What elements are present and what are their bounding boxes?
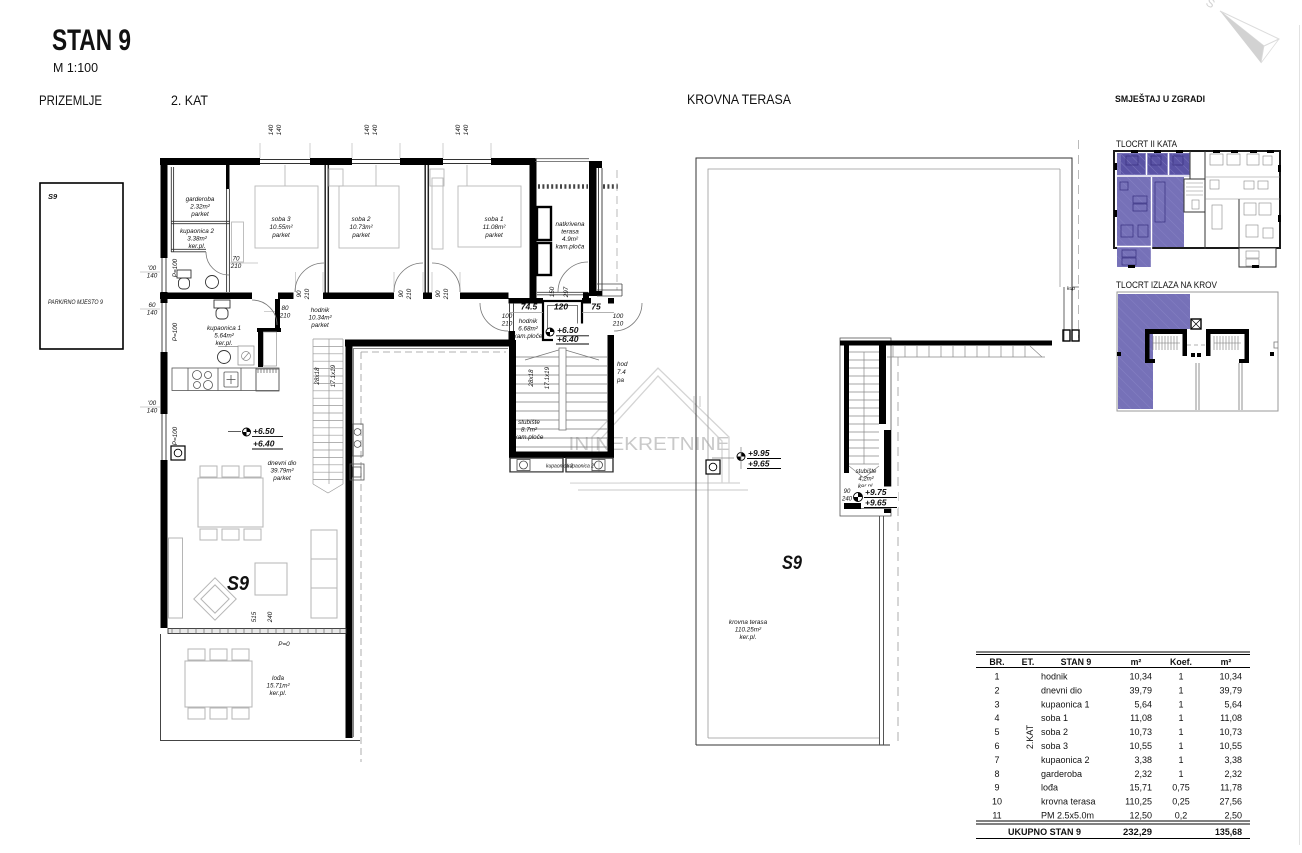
svg-text:soba 3: soba 3 — [1041, 741, 1068, 751]
svg-text:11,78: 11,78 — [1220, 783, 1242, 793]
svg-text:17.1x19: 17.1x19 — [330, 364, 337, 387]
svg-text:135,68: 135,68 — [1215, 827, 1242, 838]
svg-text:3: 3 — [994, 699, 999, 709]
svg-text:krovna terasa: krovna terasa — [1041, 797, 1096, 807]
svg-text:2,32: 2,32 — [1134, 769, 1152, 779]
svg-text:S9: S9 — [227, 573, 250, 595]
svg-text:120: 120 — [554, 302, 568, 312]
svg-text:+9.75: +9.75 — [865, 487, 887, 497]
svg-text:140: 140 — [364, 124, 371, 135]
svg-text:UKUPNO STAN 9: UKUPNO STAN 9 — [1008, 827, 1081, 838]
svg-text:dnevni dio: dnevni dio — [1041, 685, 1082, 695]
svg-text:1: 1 — [1178, 672, 1183, 682]
svg-text:0,2: 0,2 — [1175, 811, 1188, 821]
svg-text:10: 10 — [992, 797, 1002, 807]
svg-text:210: 210 — [612, 321, 624, 328]
svg-text:M 1:100: M 1:100 — [53, 60, 98, 75]
svg-text:9: 9 — [994, 783, 999, 793]
svg-text:IN NEKRETNINE: IN NEKRETNINE — [569, 434, 730, 454]
svg-text:5.64m²: 5.64m² — [214, 333, 235, 340]
svg-text:parket: parket — [190, 211, 209, 218]
svg-text:240: 240 — [267, 611, 274, 623]
svg-text:parket: parket — [351, 232, 370, 239]
svg-text:+9.65: +9.65 — [748, 459, 770, 469]
svg-text:ker.pl.: ker.pl. — [740, 634, 757, 641]
svg-text:m²: m² — [1221, 657, 1232, 667]
svg-text:kup: kup — [1067, 286, 1075, 292]
svg-text:60: 60 — [148, 302, 156, 309]
svg-text:90: 90 — [844, 489, 851, 495]
svg-text:10,73: 10,73 — [1129, 727, 1152, 737]
svg-text:1: 1 — [1178, 713, 1183, 723]
svg-text:+6.40: +6.40 — [557, 334, 579, 344]
svg-text:+6.40: +6.40 — [253, 439, 275, 449]
svg-text:+9.65: +9.65 — [865, 498, 887, 508]
svg-text:210: 210 — [501, 321, 513, 328]
svg-text:garderoba: garderoba — [1041, 769, 1082, 779]
svg-text:6.68m²: 6.68m² — [518, 326, 539, 333]
svg-text:kupaonica 2: kupaonica 2 — [180, 228, 214, 235]
svg-text:STAN 9: STAN 9 — [52, 24, 131, 57]
svg-text:28x18: 28x18 — [314, 367, 321, 386]
svg-text:4: 4 — [994, 713, 999, 723]
svg-text:100: 100 — [502, 313, 513, 320]
svg-text:kupaonica 1: kupaonica 1 — [1041, 699, 1090, 709]
svg-text:75: 75 — [591, 302, 601, 312]
svg-text:2,50: 2,50 — [1224, 811, 1242, 821]
svg-text:parket: parket — [310, 322, 329, 329]
svg-text:PRIZEMLJE: PRIZEMLJE — [39, 93, 102, 108]
svg-text:150: 150 — [549, 286, 556, 297]
svg-text:6: 6 — [994, 741, 999, 751]
svg-text:3,38: 3,38 — [1224, 755, 1242, 765]
svg-text:10,73: 10,73 — [1219, 727, 1242, 737]
svg-text:10.55m²: 10.55m² — [269, 224, 293, 231]
svg-text:4,2m²: 4,2m² — [858, 477, 874, 483]
svg-text:7: 7 — [994, 755, 999, 765]
svg-text:1: 1 — [1178, 755, 1183, 765]
svg-text:140: 140 — [276, 124, 283, 135]
svg-text:BR.: BR. — [989, 657, 1004, 667]
svg-text:11.08m²: 11.08m² — [483, 224, 507, 231]
svg-text:232,29: 232,29 — [1123, 827, 1152, 838]
svg-text:27,56: 27,56 — [1219, 797, 1242, 807]
svg-text:kam.ploče: kam.ploče — [515, 434, 544, 441]
svg-text:+6.50: +6.50 — [253, 426, 275, 436]
svg-text:70: 70 — [232, 256, 240, 263]
svg-text:P=100: P=100 — [172, 258, 179, 277]
svg-text:39.79m²: 39.79m² — [270, 468, 294, 475]
svg-text:12,50: 12,50 — [1129, 811, 1152, 821]
svg-text:pa: pa — [616, 377, 625, 384]
svg-text:297: 297 — [563, 286, 570, 298]
svg-text:2,32: 2,32 — [1224, 769, 1242, 779]
svg-text:ET.: ET. — [1022, 657, 1035, 667]
svg-text:10,55: 10,55 — [1129, 741, 1152, 751]
svg-text:515: 515 — [251, 611, 258, 622]
svg-text:lođa: lođa — [1041, 783, 1058, 793]
svg-text:soba 2: soba 2 — [1041, 727, 1068, 737]
svg-text:TLOCRT II KATA: TLOCRT II KATA — [1116, 139, 1178, 150]
svg-text:15.71m²: 15.71m² — [266, 683, 290, 690]
svg-text:S9: S9 — [48, 192, 58, 201]
svg-text:10,55: 10,55 — [1219, 741, 1242, 751]
svg-text:140: 140 — [372, 124, 379, 135]
svg-text:kam.ploče: kam.ploče — [514, 333, 543, 340]
svg-text:5: 5 — [994, 727, 999, 737]
svg-text:m²: m² — [1131, 657, 1142, 667]
svg-text:10,34: 10,34 — [1129, 672, 1152, 682]
svg-text:10.34m²: 10.34m² — [308, 315, 332, 322]
svg-text:hod: hod — [617, 361, 628, 368]
svg-text:PARKIRNO MJESTO 9: PARKIRNO MJESTO 9 — [48, 299, 103, 306]
svg-text:hodnik: hodnik — [1041, 672, 1068, 682]
svg-text:SMJEŠTAJ U ZGRADI: SMJEŠTAJ U ZGRADI — [1115, 93, 1205, 105]
svg-text:1: 1 — [1178, 769, 1183, 779]
svg-text:17.1x19: 17.1x19 — [544, 366, 551, 389]
svg-text:210: 210 — [304, 288, 311, 300]
svg-text:STAN 9: STAN 9 — [1061, 657, 1092, 667]
svg-text:4.9m²: 4.9m² — [562, 236, 579, 243]
svg-text:kupaonica 1: kupaonica 1 — [207, 325, 241, 332]
svg-text:dnevni dio: dnevni dio — [268, 460, 297, 467]
svg-text:1: 1 — [1178, 685, 1183, 695]
svg-text:7.4: 7.4 — [617, 369, 626, 376]
svg-text:terasa: terasa — [561, 229, 579, 236]
svg-text:8.7m²: 8.7m² — [521, 427, 538, 434]
svg-text:90: 90 — [435, 290, 442, 298]
svg-text:2.KAT: 2.KAT — [1025, 724, 1035, 749]
svg-text:11,08: 11,08 — [1130, 713, 1152, 723]
svg-text:P=100: P=100 — [172, 322, 179, 341]
svg-text:210: 210 — [443, 288, 450, 300]
svg-text:KROVNA TERASA: KROVNA TERASA — [687, 92, 791, 107]
svg-text:1: 1 — [1178, 699, 1183, 709]
svg-text:P=0: P=0 — [278, 641, 290, 648]
svg-text:parket: parket — [484, 232, 503, 239]
svg-text:stubište: stubište — [518, 419, 540, 426]
svg-text:+9.95: +9.95 — [748, 448, 770, 458]
svg-text:3.38m²: 3.38m² — [187, 236, 208, 243]
svg-text:stubište: stubište — [856, 469, 877, 475]
svg-text:hodnik: hodnik — [519, 318, 538, 325]
svg-text:210: 210 — [279, 313, 291, 320]
svg-text:parket: parket — [272, 475, 291, 482]
svg-text:0,75: 0,75 — [1172, 783, 1190, 793]
svg-text:5,64: 5,64 — [1224, 699, 1242, 709]
svg-text:TLOCRT IZLAZA NA KROV: TLOCRT IZLAZA NA KROV — [1116, 280, 1218, 291]
svg-text:140: 140 — [147, 310, 158, 317]
svg-text:5,64: 5,64 — [1134, 699, 1152, 709]
svg-text:ker.pl.: ker.pl. — [189, 243, 206, 250]
svg-text:140: 140 — [268, 124, 275, 135]
svg-text:39,79: 39,79 — [1129, 685, 1152, 695]
svg-text:PM 2.5x5.0m: PM 2.5x5.0m — [1041, 811, 1094, 821]
svg-text:'00: '00 — [148, 400, 157, 407]
svg-text:garderoba: garderoba — [186, 196, 215, 203]
svg-text:soba 2: soba 2 — [352, 216, 371, 223]
svg-text:S9: S9 — [782, 553, 802, 574]
svg-text:soba 1: soba 1 — [1041, 713, 1068, 723]
svg-text:8: 8 — [994, 769, 999, 779]
svg-text:74.5: 74.5 — [521, 302, 538, 312]
svg-text:11: 11 — [992, 811, 1001, 821]
svg-text:140: 140 — [147, 408, 158, 415]
svg-text:110.25m²: 110.25m² — [735, 627, 762, 634]
svg-text:210: 210 — [230, 263, 242, 270]
svg-text:hodnik: hodnik — [311, 307, 330, 314]
svg-text:11,08: 11,08 — [1220, 713, 1242, 723]
svg-text:2.32m²: 2.32m² — [189, 204, 211, 211]
svg-text:0,25: 0,25 — [1172, 797, 1190, 807]
svg-text:1: 1 — [1178, 727, 1183, 737]
svg-text:3,38: 3,38 — [1134, 755, 1152, 765]
svg-text:90: 90 — [296, 290, 303, 298]
svg-text:ker.pl.: ker.pl. — [270, 690, 287, 697]
svg-text:'00: '00 — [148, 265, 157, 272]
svg-text:15,71: 15,71 — [1129, 783, 1152, 793]
svg-text:240: 240 — [841, 497, 853, 503]
svg-text:39,79: 39,79 — [1219, 685, 1242, 695]
svg-text:Koef.: Koef. — [1170, 657, 1192, 667]
svg-text:80: 80 — [281, 305, 289, 312]
svg-text:100: 100 — [613, 313, 624, 320]
svg-text:90: 90 — [398, 290, 405, 298]
svg-text:110,25: 110,25 — [1125, 797, 1152, 807]
svg-text:lođa: lođa — [272, 675, 284, 682]
svg-text:1: 1 — [994, 672, 999, 682]
svg-text:210: 210 — [406, 288, 413, 300]
svg-text:ker.pl.: ker.pl. — [216, 340, 233, 347]
svg-text:kam.ploča: kam.ploča — [556, 244, 585, 251]
svg-text:140: 140 — [147, 273, 158, 280]
svg-text:1: 1 — [1178, 741, 1183, 751]
svg-text:soba 3: soba 3 — [272, 216, 291, 223]
svg-text:natkrivena: natkrivena — [555, 221, 585, 228]
svg-text:2. KAT: 2. KAT — [171, 93, 208, 108]
svg-text:2: 2 — [994, 685, 999, 695]
svg-text:krovna terasa: krovna terasa — [729, 619, 768, 626]
svg-text:kupaonica 2: kupaonica 2 — [567, 464, 594, 470]
svg-text:S: S — [1204, 0, 1218, 11]
svg-text:140: 140 — [455, 124, 462, 135]
svg-text:140: 140 — [463, 124, 470, 135]
svg-text:10,34: 10,34 — [1219, 672, 1242, 682]
svg-text:soba 1: soba 1 — [485, 216, 504, 223]
svg-text:kupaonica 2: kupaonica 2 — [1041, 755, 1090, 765]
svg-text:28x18: 28x18 — [528, 369, 535, 388]
svg-text:10.73m²: 10.73m² — [349, 224, 373, 231]
svg-text:parket: parket — [271, 232, 290, 239]
svg-text:P=100: P=100 — [172, 426, 179, 445]
